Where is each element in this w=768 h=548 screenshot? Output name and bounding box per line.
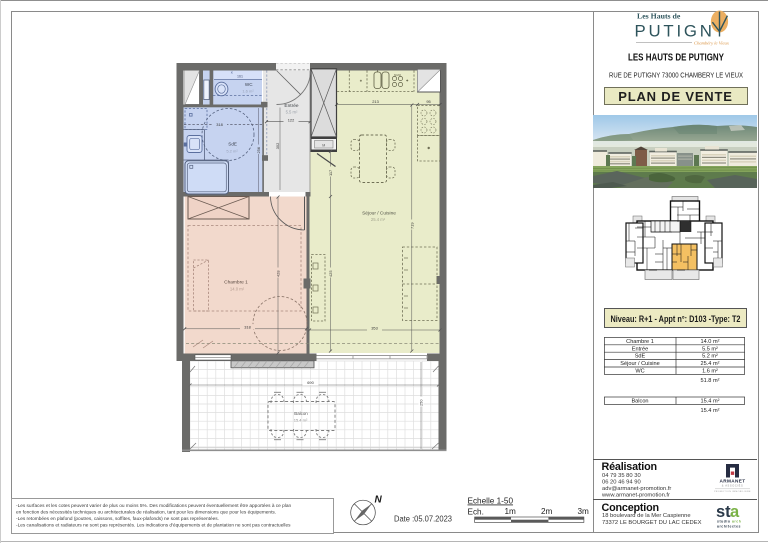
svg-text:Niveau: R+1 - Appt n°: D103 -: Niveau: R+1 - Appt n°: D103 -Type: T2 <box>611 312 741 323</box>
svg-text:15.4 m²: 15.4 m² <box>700 398 719 404</box>
svg-text:18 boulevard de la Mer Caspien: 18 boulevard de la Mer Caspienne <box>602 513 691 519</box>
svg-text:PUTIGN: PUTIGN <box>635 22 715 41</box>
svg-text:06 20 46 94 90: 06 20 46 94 90 <box>602 480 641 486</box>
svg-text:studio arch: studio arch <box>717 520 741 524</box>
svg-text:Balcon: Balcon <box>294 411 308 416</box>
svg-text:51.8 m²: 51.8 m² <box>700 378 719 384</box>
svg-text:RUE DE PUTIGNY 73000 CHAMBERY: RUE DE PUTIGNY 73000 CHAMBERY LE VIEUX <box>609 73 743 80</box>
svg-text:5.2 m²: 5.2 m² <box>226 148 238 153</box>
svg-text:04 79 35 80 30: 04 79 35 80 30 <box>602 473 641 479</box>
svg-text:5.2 m²: 5.2 m² <box>702 353 718 359</box>
svg-text:2m: 2m <box>541 507 553 516</box>
svg-text:213: 213 <box>372 99 379 104</box>
svg-text:Entrée: Entrée <box>284 103 298 109</box>
svg-text:95: 95 <box>426 99 430 104</box>
svg-text:WC: WC <box>635 368 644 374</box>
svg-text:14.0 m²: 14.0 m² <box>230 287 245 292</box>
svg-text:N: N <box>375 495 383 506</box>
svg-text:-Les surfaces et les cotes peu: -Les surfaces et les cotes peuvent varie… <box>16 503 291 509</box>
svg-text:690: 690 <box>307 380 314 385</box>
svg-text:adv@armanet-promotion.fr: adv@armanet-promotion.fr <box>602 486 671 492</box>
svg-text:117: 117 <box>328 170 333 176</box>
svg-text:architectes: architectes <box>717 525 741 529</box>
svg-text:ARMANET: ARMANET <box>720 479 746 484</box>
svg-text:428: 428 <box>276 271 281 278</box>
svg-text:122: 122 <box>288 117 295 122</box>
svg-text:15.4 m²: 15.4 m² <box>294 418 308 423</box>
svg-text:Ech.: Ech. <box>468 508 484 517</box>
svg-text:318: 318 <box>244 324 251 329</box>
svg-text:Séjour / Cuisine: Séjour / Cuisine <box>362 211 396 217</box>
svg-text:1.6 m²: 1.6 m² <box>242 88 254 93</box>
svg-text:www.armanet-promotion.fr: www.armanet-promotion.fr <box>602 493 670 499</box>
svg-text:161: 161 <box>237 75 243 79</box>
svg-text:Date :05.07.2023: Date :05.07.2023 <box>394 514 452 524</box>
svg-text:60x60: 60x60 <box>394 73 402 77</box>
svg-text:14.0 m²: 14.0 m² <box>700 338 719 344</box>
svg-text:SdE: SdE <box>228 142 237 147</box>
svg-text:Chambre 1: Chambre 1 <box>626 338 654 344</box>
svg-text:256: 256 <box>256 147 261 154</box>
svg-text:Echelle 1-50: Echelle 1-50 <box>468 497 514 506</box>
svg-text:a: a <box>730 503 740 521</box>
svg-text:25.4 m²: 25.4 m² <box>371 217 386 222</box>
svg-text:353: 353 <box>371 326 378 331</box>
svg-text:5.5 m²: 5.5 m² <box>286 110 298 115</box>
svg-text:-Les retombées en plafond (pou: -Les retombées en plafond (poutres, cais… <box>16 516 219 522</box>
svg-text:M: M <box>322 143 325 147</box>
svg-text:15.4 m²: 15.4 m² <box>700 407 719 413</box>
svg-text:719: 719 <box>409 223 414 230</box>
svg-text:st: st <box>716 503 731 521</box>
svg-text:3m: 3m <box>578 507 590 516</box>
svg-text:425: 425 <box>328 271 333 278</box>
svg-text:1m: 1m <box>505 507 517 516</box>
svg-text:Entrée: Entrée <box>631 346 647 352</box>
svg-text:Chambre 1: Chambre 1 <box>224 280 248 286</box>
svg-text:WC: WC <box>245 82 253 87</box>
svg-text:SdE: SdE <box>634 353 645 359</box>
svg-text:en fonction des nécessités tec: en fonction des nécessités techniques ou… <box>16 509 276 515</box>
svg-text:PROMOTION IMMOBILIERE: PROMOTION IMMOBILIERE <box>714 491 751 493</box>
svg-text:302: 302 <box>275 143 280 150</box>
svg-text:250: 250 <box>419 399 424 406</box>
svg-text:Séjour / Cuisine: Séjour / Cuisine <box>620 361 660 367</box>
svg-text:25.4 m²: 25.4 m² <box>700 361 719 367</box>
svg-text:Les Hauts de: Les Hauts de <box>637 11 681 20</box>
svg-text:318: 318 <box>216 122 223 127</box>
svg-text:73372 LE BOURGET DU LAC CEDEX: 73372 LE BOURGET DU LAC CEDEX <box>602 520 702 526</box>
svg-text:LES HAUTS DE PUTIGNY: LES HAUTS DE PUTIGNY <box>628 53 724 64</box>
svg-text:-Les canalisations et radiateu: -Les canalisations et radiateurs ne sont… <box>16 522 291 528</box>
svg-text:5.5 m²: 5.5 m² <box>702 346 718 352</box>
svg-text:Chambéry le Vieux: Chambéry le Vieux <box>694 40 729 45</box>
svg-text:1.6 m²: 1.6 m² <box>702 368 718 374</box>
svg-text:Balcon: Balcon <box>631 398 648 404</box>
